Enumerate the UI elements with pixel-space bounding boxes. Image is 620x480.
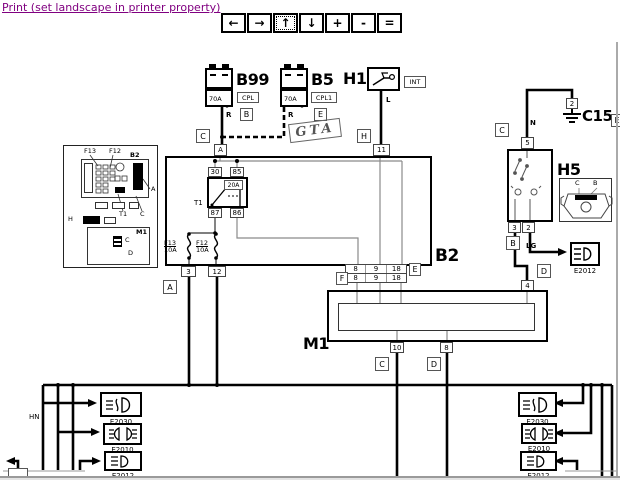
inset-h-label: H: [68, 216, 73, 223]
inset-m1-label: M1: [136, 229, 147, 236]
e2030-right-box: [518, 392, 557, 417]
inset-c2-label: C: [125, 237, 130, 244]
headlamp-icon: [526, 454, 552, 469]
zoom-fit-button[interactable]: =: [377, 13, 402, 33]
b99-wire-color: R: [226, 111, 231, 119]
wire-hn-label: HN: [29, 413, 40, 421]
ground-icon: [563, 109, 581, 122]
b2-pin-8: 8: [346, 265, 365, 273]
h1-label: H1: [343, 69, 367, 88]
b5-battery-icon: [280, 64, 308, 89]
wire-arrowheads: [6, 248, 567, 465]
pan-left-button[interactable]: ←: [221, 13, 246, 33]
relay-pin-85: 85: [230, 167, 244, 177]
relay-pin-86: 86: [230, 208, 244, 218]
b99-fuse-box: 70A: [205, 89, 233, 107]
h5-label: H5: [557, 160, 581, 179]
h5-pin-3: 3: [508, 222, 521, 233]
b2-top-connector-letter: C: [196, 129, 210, 143]
fuse-f13-label: F13 10A: [164, 240, 177, 254]
relay-pin-87: 87: [208, 208, 222, 218]
inset-c-label: C: [140, 211, 145, 218]
m1-connector-f-letter: F: [336, 272, 348, 285]
e2012-right-label: E2012: [568, 267, 602, 275]
b2-pin-9: 9: [365, 265, 385, 273]
h1-int-tag: INT: [404, 76, 426, 88]
headlamp-icon: [573, 246, 597, 262]
m1-inner-module: [338, 303, 535, 331]
b99-label: B99: [236, 70, 269, 89]
position-lamp-icon: [524, 426, 554, 442]
b2-pin-a: A: [214, 144, 227, 156]
h5-top-connector-letter: C: [495, 123, 509, 137]
pan-right-button[interactable]: →: [247, 13, 272, 33]
inset-m1-module: [113, 236, 122, 247]
zoom-out-button[interactable]: -: [351, 13, 376, 33]
h5-pin-2: 2: [522, 222, 535, 233]
relay-pin-30: 30: [208, 167, 222, 177]
headlamp-icon: [110, 454, 136, 469]
m1-pin-8: 8: [440, 342, 453, 353]
h5-wire-n: N: [530, 119, 536, 127]
m1-pin-f8: 8: [346, 274, 365, 282]
b2-pin-12: 12: [208, 266, 226, 277]
h5-pin-5: 5: [521, 137, 534, 149]
zoom-in-button[interactable]: +: [325, 13, 350, 33]
gta-variant-badge: GTA: [288, 118, 342, 143]
fuse-f12-rating: 10A: [196, 246, 209, 254]
m1-pin-f18: 18: [386, 274, 406, 282]
inset-t1-label: T1: [119, 211, 127, 218]
h1-wire-color: L: [386, 96, 390, 104]
position-lamp-icon: [108, 426, 138, 442]
inset-d-label: D: [128, 250, 133, 257]
pan-up-button[interactable]: ↑: [273, 13, 298, 33]
b5-wire-color: R: [288, 111, 293, 119]
switch-location-drawing: [560, 179, 613, 223]
inset-holder-1: [95, 202, 108, 209]
h5-box: [507, 149, 553, 222]
b2-main-label: B2: [435, 246, 459, 266]
h5-location-inset: C B: [559, 178, 612, 222]
m1-pin-10: 10: [390, 342, 404, 353]
inset-holder-2: [112, 202, 125, 209]
b99-connector-letter: B: [240, 108, 253, 121]
inset-b2-label: B2: [130, 152, 139, 159]
m1-main-label: M1: [303, 334, 329, 353]
m1-connector-f-row: 8 9 18: [345, 273, 407, 283]
pan-down-button[interactable]: ↓: [299, 13, 324, 33]
inset-h-connector2: [104, 217, 116, 224]
b99-connector-tag: CPL: [237, 92, 259, 103]
fog-lamp-icon: [105, 396, 137, 414]
inset-a-label: A: [151, 186, 155, 193]
e2010-right-box: [521, 423, 557, 444]
e2012-left-box: [104, 451, 142, 471]
c15-label: C15: [582, 107, 612, 125]
stalk-switch-icon: [370, 70, 399, 90]
b99-battery-icon: [205, 64, 233, 89]
e2012-right-box: [570, 242, 600, 266]
m1-connector-d-right-letter: D: [537, 264, 551, 278]
inset-h-connector: [83, 216, 100, 224]
h1-box: [367, 67, 400, 91]
h1-connector-letter: H: [357, 129, 371, 143]
relay-label: T1: [194, 199, 203, 207]
page-right-border: [616, 42, 618, 476]
fuse-f12-label: F12 10A: [196, 240, 209, 254]
component-location-inset: F13 F12 B2 A T1 C H M1 C D: [63, 145, 158, 268]
h5-wire-lg: LG: [526, 242, 536, 250]
b5-fuse-rating: 70A: [284, 96, 297, 103]
b2-pin-3: 3: [181, 266, 196, 277]
inset-holder-3: [129, 202, 139, 209]
m1-connector-d-letter: D: [427, 357, 441, 371]
fog-lamp-icon: [522, 396, 554, 414]
e2010-left-box: [103, 423, 142, 445]
e2012-right-bottom-box: [520, 451, 557, 471]
print-link[interactable]: Print (set landscape in printer property…: [2, 1, 220, 14]
c15-pin-2: 2: [566, 98, 578, 109]
b99-fuse-rating: 70A: [209, 96, 222, 103]
relay-fuse-rating: 20A: [224, 180, 243, 190]
b5-label: B5: [311, 70, 333, 89]
fuse-f13-rating: 10A: [164, 246, 177, 254]
e2030-left-box: [100, 392, 142, 417]
m1-connector-c-letter: C: [375, 357, 389, 371]
b2-connector-e-letter: E: [409, 263, 421, 276]
b2-pin-11: 11: [373, 144, 390, 156]
b2-pin-18: 18: [386, 265, 406, 273]
b2-connector-a-letter: A: [163, 280, 177, 294]
h5-bottom-connector-letter: B: [506, 236, 520, 250]
b5-fuse-box: 70A: [280, 89, 308, 107]
b5-connector-tag: CPL1: [311, 92, 337, 103]
m1-pin-f9: 9: [365, 274, 385, 282]
